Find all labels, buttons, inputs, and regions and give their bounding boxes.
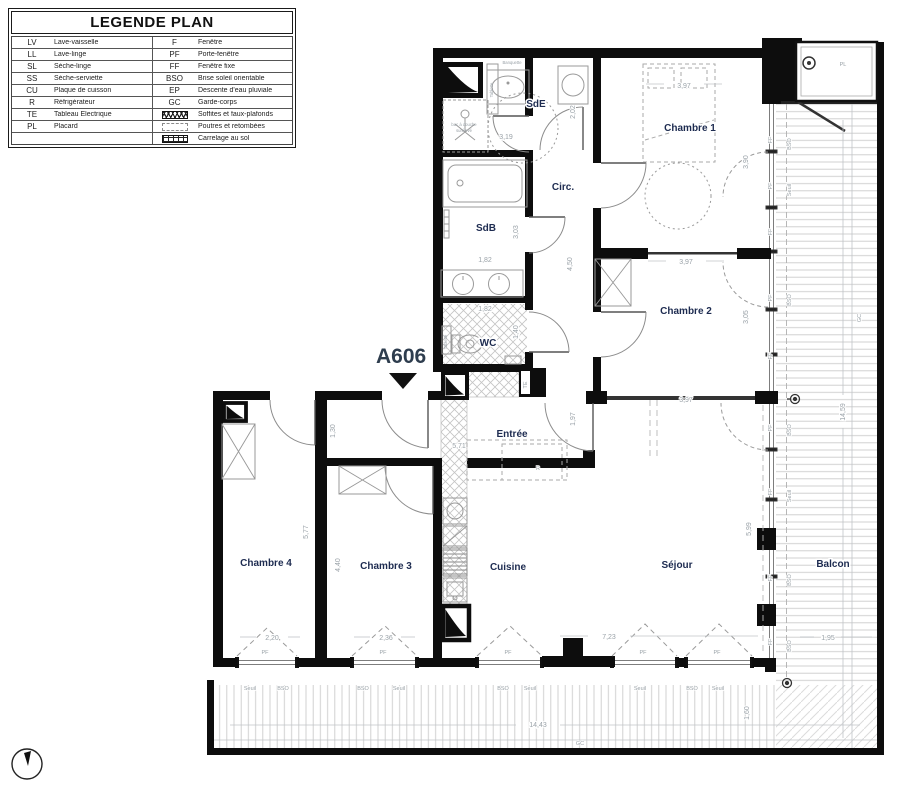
unit-number: A606 bbox=[376, 345, 426, 368]
shaft-kitchen bbox=[443, 606, 469, 640]
mark-pf: PF bbox=[768, 424, 774, 432]
mark-bso: BSO bbox=[277, 686, 289, 692]
dimensions: 3,19 2,02 3,97 3,90 3,97 3,05 3,97 1,82 … bbox=[265, 83, 847, 729]
mark-shower-note-1: bac à douche bbox=[451, 122, 477, 127]
dim-sdb-width: 1,82 bbox=[478, 257, 492, 264]
mark-ff: FF bbox=[768, 638, 774, 645]
dim-balcon-height: 14,59 bbox=[840, 403, 847, 421]
bed-ch1 bbox=[643, 64, 715, 162]
dim-sejour-depth: 5,99 bbox=[746, 522, 753, 536]
dim-entree-depth: 1,97 bbox=[570, 412, 577, 426]
mark-shower-note-2: surélevé bbox=[456, 128, 472, 133]
dim-ch4-depth: 5,77 bbox=[303, 525, 310, 539]
mark-pf: PF bbox=[713, 650, 721, 656]
mark-bso: BSO bbox=[497, 686, 509, 692]
room-label-cuisine: Cuisine bbox=[490, 562, 527, 573]
mark-gc: GC bbox=[576, 741, 584, 747]
mark-seuil: Seuil bbox=[634, 686, 646, 692]
dim-circ-depth: 4,50 bbox=[567, 257, 574, 271]
balcony-door-ch2 bbox=[723, 262, 768, 307]
pl-closet bbox=[796, 42, 877, 101]
placard-ch4 bbox=[222, 424, 255, 479]
dim-sdb-depth: 3,03 bbox=[513, 225, 520, 239]
mark-bso: BSO bbox=[357, 686, 369, 692]
dim-ch3-window: 2,36 bbox=[379, 635, 393, 642]
mark-banquette: Banquette bbox=[502, 60, 522, 65]
room-label-wc: WC bbox=[480, 338, 497, 349]
mark-pl: PL bbox=[840, 62, 847, 68]
balcony-door-sejour bbox=[721, 403, 768, 450]
dim-ch4-window: 2,20 bbox=[265, 635, 279, 642]
door-sdb bbox=[529, 217, 565, 253]
sdb-vanity bbox=[441, 270, 523, 297]
placard-ch3 bbox=[339, 466, 386, 494]
room-label-sde: SdE bbox=[526, 99, 546, 110]
bathtub bbox=[443, 160, 527, 207]
cooktop bbox=[443, 548, 467, 576]
mark-pf: PF bbox=[639, 650, 647, 656]
mark-te: TE bbox=[523, 381, 529, 388]
shaft-ch4 bbox=[224, 403, 246, 421]
dim-ch2-depth: 3,05 bbox=[743, 310, 750, 324]
mark-seuil: Seuil bbox=[787, 490, 793, 502]
room-label-entree: Entrée bbox=[496, 429, 528, 440]
door-ch1 bbox=[601, 163, 646, 208]
entry-tiling bbox=[467, 371, 519, 397]
window-swings bbox=[237, 624, 752, 656]
mark-gc: GC bbox=[857, 314, 863, 322]
dim-sejour-width: 7,23 bbox=[602, 634, 616, 641]
mark-pf: PF bbox=[504, 650, 512, 656]
shaft-entry bbox=[443, 373, 467, 398]
dim-entree-width: 5,71 bbox=[452, 443, 466, 450]
compass-icon bbox=[12, 749, 42, 779]
mark-ff: FF bbox=[768, 352, 774, 359]
dim-ch3-depth: 4,40 bbox=[335, 558, 342, 572]
dim-ch1-depth: 3,90 bbox=[743, 155, 750, 169]
dim-balcon-bottom-width: 14,43 bbox=[529, 722, 547, 729]
unit-marker: A606 bbox=[376, 345, 426, 389]
room-label-sdb: SdB bbox=[476, 223, 496, 234]
mark-bso: BSO bbox=[787, 137, 793, 149]
room-label-sejour: Séjour bbox=[661, 560, 692, 571]
mark-bso: BSO bbox=[787, 293, 793, 305]
door-wc bbox=[529, 312, 569, 352]
mark-tablette-wc: Tablette bbox=[443, 334, 448, 349]
door-ch2 bbox=[601, 312, 646, 357]
mark-seuil: Seuil bbox=[393, 686, 405, 692]
room-labels: SdE Chambre 1 Circ. SdB Chambre 2 WC Ent… bbox=[240, 99, 850, 573]
mark-seuil: Seuil bbox=[244, 686, 256, 692]
mark-pf: PF bbox=[261, 650, 269, 656]
mark-seuil: Seuil bbox=[524, 686, 536, 692]
turning-circle-ch1 bbox=[645, 163, 711, 229]
door-entry bbox=[382, 400, 428, 448]
mark-bso: BSO bbox=[787, 423, 793, 435]
mark-seuil: Seuil bbox=[712, 686, 724, 692]
room-label-ch3: Chambre 3 bbox=[360, 561, 412, 572]
mark-tablette: Tablette bbox=[489, 82, 494, 97]
mark-refrigerator: R bbox=[536, 466, 540, 472]
towel-radiator bbox=[444, 210, 449, 238]
mark-ff: FF bbox=[768, 488, 774, 495]
dim-balcon-width: 1,95 bbox=[821, 635, 835, 642]
niche-washbasin bbox=[558, 66, 588, 104]
dim-ch2-width: 3,97 bbox=[679, 259, 693, 266]
dim-hall: 1,30 bbox=[330, 424, 337, 438]
shaft-sde bbox=[446, 65, 481, 96]
mark-bso: BSO bbox=[787, 639, 793, 651]
mark-pf: PF bbox=[379, 650, 387, 656]
room-label-circ: Circ. bbox=[552, 182, 574, 193]
mark-ff: FF bbox=[768, 574, 774, 581]
mark-ff: FF bbox=[768, 228, 774, 235]
floor-plan: A606 SdE Chambre 1 Circ. SdB Chambre 2 W… bbox=[0, 0, 903, 800]
entrance-arrow-icon bbox=[389, 373, 417, 389]
room-label-ch4: Chambre 4 bbox=[240, 558, 292, 569]
door-ch3 bbox=[385, 466, 433, 514]
mark-seuil: Seuil bbox=[787, 184, 793, 196]
dim-balcon-bottom-depth: 1,60 bbox=[744, 706, 751, 720]
dim-wc-depth: 1,40 bbox=[513, 325, 520, 339]
dim-ch1-width: 3,97 bbox=[677, 83, 691, 90]
room-label-balcon: Balcon bbox=[816, 559, 849, 570]
mark-bso: BSO bbox=[787, 573, 793, 585]
balcony-decking bbox=[213, 104, 877, 748]
dim-ch2-width-bottom: 3,97 bbox=[679, 397, 693, 404]
mark-bso: BSO bbox=[686, 686, 698, 692]
mark-ff: FF bbox=[768, 136, 774, 143]
dim-sde-width: 3,19 bbox=[499, 134, 513, 141]
mark-pf: PF bbox=[768, 294, 774, 302]
room-label-ch2: Chambre 2 bbox=[660, 306, 712, 317]
room-label-ch1: Chambre 1 bbox=[664, 123, 716, 134]
door-ch4 bbox=[270, 400, 315, 445]
dim-wc-width: 1,82 bbox=[478, 306, 492, 313]
dim-sde-depth: 2,02 bbox=[570, 105, 577, 119]
mark-pf: PF bbox=[768, 182, 774, 190]
